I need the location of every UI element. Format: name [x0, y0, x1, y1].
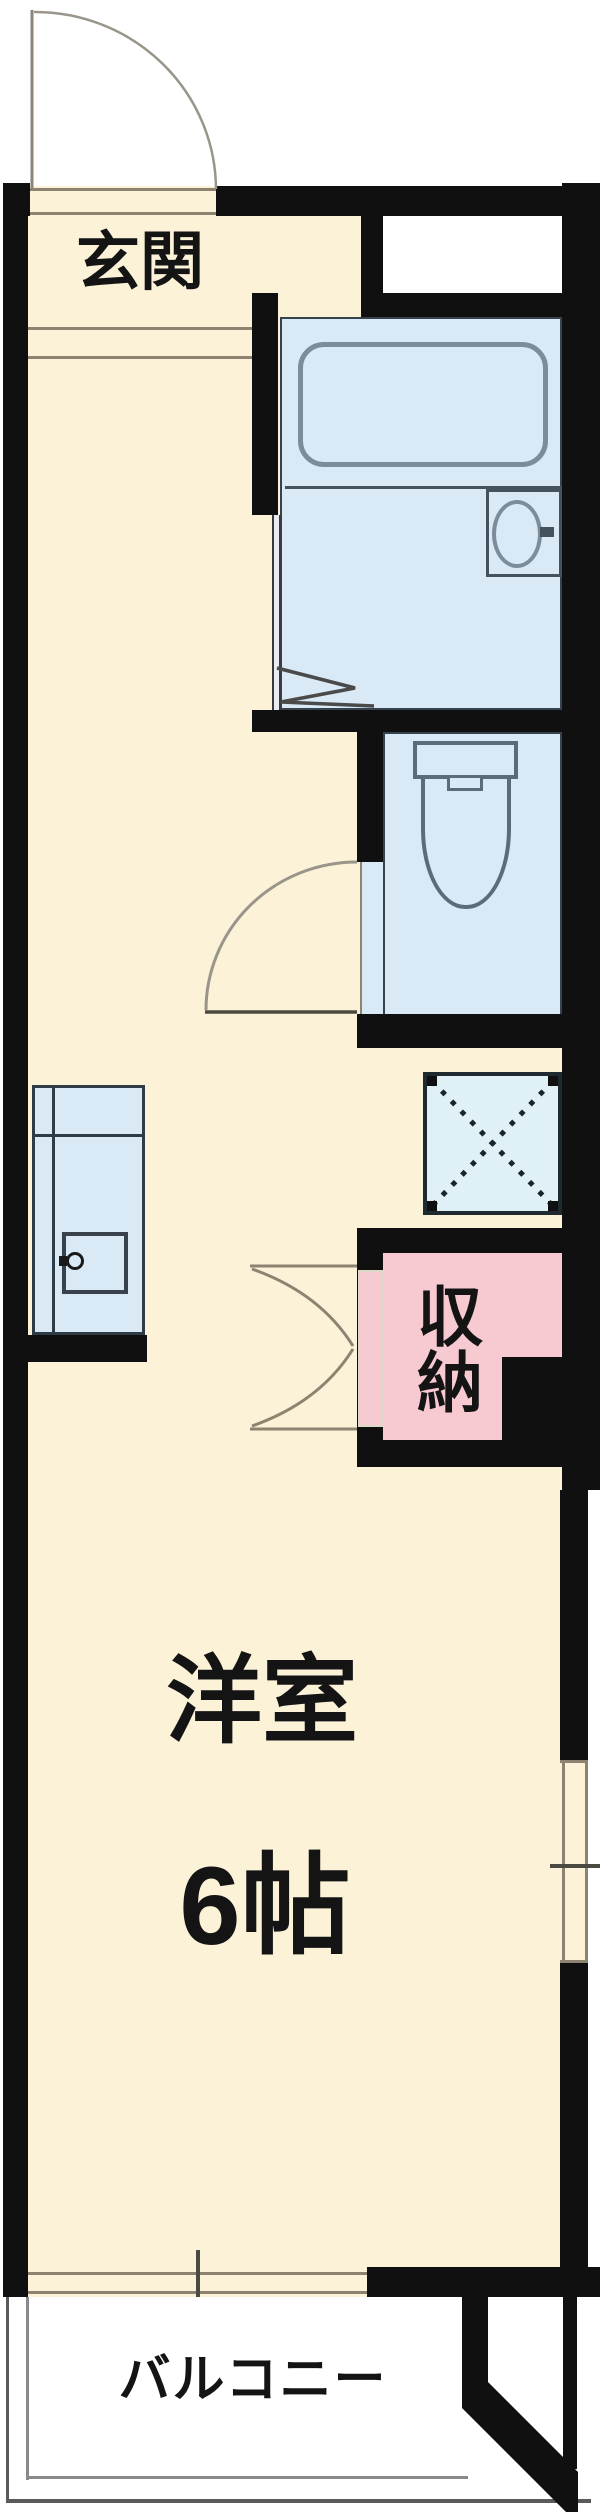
right-window-cap-top	[560, 1760, 588, 1763]
label-western-room: 洋室	[102, 1650, 422, 1754]
kitchen-divider-line	[35, 1134, 143, 1137]
bathroom-thin-wall	[272, 515, 281, 710]
wall-top-left-corner	[3, 183, 30, 216]
right-window-line-outer	[585, 1762, 588, 1963]
washer-pan	[423, 1072, 562, 1215]
right-window-line-inner	[562, 1762, 565, 1963]
label-room-size: 6帖	[85, 1848, 445, 1967]
wall-toilet-stub	[357, 732, 383, 862]
genkan-step-line-2	[28, 356, 252, 359]
washbasin-faucet	[540, 527, 554, 537]
right-window-cap-bottom	[560, 1960, 588, 1963]
entry-opening-inner-line	[30, 212, 216, 215]
balcony-inner-bottom-line	[26, 2476, 468, 2479]
balcony-right-wall	[563, 2297, 577, 2469]
wall-kitchen-base	[28, 1335, 147, 1362]
storage-door-panel	[358, 1270, 383, 1427]
right-window-tick	[550, 1864, 600, 1868]
floorplan: 玄関 収納 洋室 6帖 バルコニー	[0, 0, 600, 2512]
wall-right-upper	[562, 183, 600, 1490]
kitchen-counter-edge-line	[52, 1087, 55, 1333]
outside-sliver-right	[588, 1490, 600, 2267]
kitchen-faucet	[66, 1252, 84, 1270]
kitchen-counter	[32, 1085, 145, 1335]
meter-box-void	[383, 216, 562, 293]
wall-right-mid	[560, 1490, 588, 1762]
wall-right-lower	[560, 1963, 588, 2267]
entry-door-arc	[34, 12, 216, 189]
label-entrance: 玄関	[40, 228, 240, 297]
kitchen-faucet-base	[59, 1256, 67, 1266]
label-storage: 収納	[404, 1264, 478, 1432]
wall-left	[3, 186, 28, 2297]
bathtub	[298, 342, 548, 467]
wall-top	[216, 186, 600, 216]
wall-entrance-bar	[252, 293, 278, 515]
wall-recess-bottom	[361, 293, 562, 317]
wall-bath-bottom	[252, 710, 562, 732]
label-balcony: バルコニー	[38, 2352, 468, 2408]
genkan-step-line-1	[28, 327, 252, 330]
toilet-tank	[413, 741, 518, 779]
balcony-outer-left-line	[6, 2297, 9, 2503]
wall-toilet-bottom	[357, 1014, 600, 1048]
wall-recess-left	[361, 216, 383, 293]
entry-opening-outer-line	[30, 188, 216, 191]
washbasin-bowl	[492, 500, 542, 568]
balcony-inner-left-line	[26, 2297, 29, 2480]
balcony-outer-bottom-line	[6, 2499, 591, 2503]
wall-bottom-step	[367, 2267, 600, 2297]
toilet-door-gap	[360, 862, 383, 1014]
